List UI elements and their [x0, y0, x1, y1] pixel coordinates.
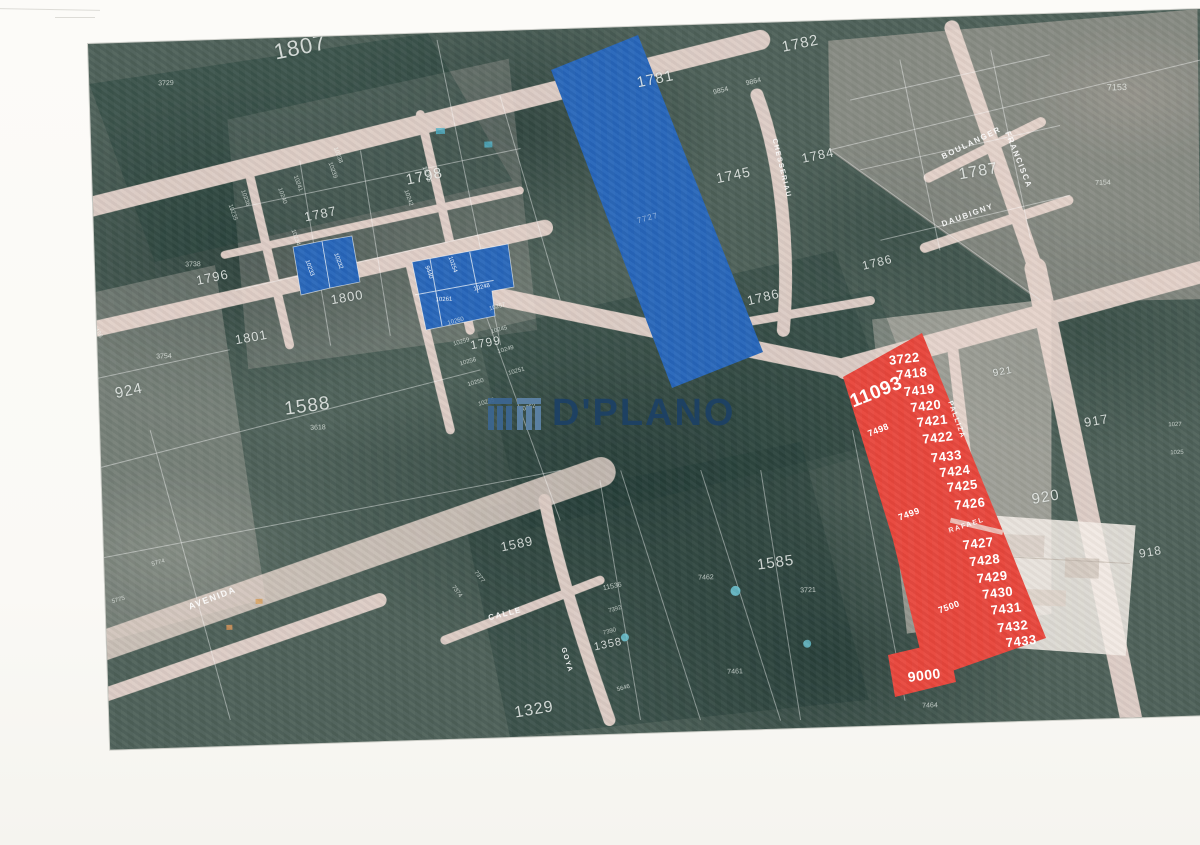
parcel-label: 7462: [698, 574, 714, 581]
red-lot-number: 7419: [903, 382, 935, 399]
red-lot-number: 9000: [907, 666, 942, 684]
parcel-label: 7153: [1107, 83, 1127, 93]
area-label: 918: [1138, 544, 1163, 560]
red-lot-number: 7429: [976, 569, 1008, 586]
scanned-aerial-map: 1807179817871796180118001799158892417811…: [88, 9, 1200, 750]
logo-glyph-light: [517, 398, 541, 430]
red-lot-number: 7425: [946, 478, 978, 495]
brand-wordmark: D'PLANO: [552, 392, 735, 435]
parcel-label: 3721: [800, 587, 816, 594]
parcel-label: 7461: [727, 668, 743, 675]
parcel-label: 7154: [1095, 179, 1111, 186]
red-lot-number: 3722: [888, 350, 920, 367]
parcel-label: 3754: [156, 353, 172, 360]
scan-artifact-line: [0, 8, 100, 11]
scanned-map-page: 1807179817871796180118001799158892417811…: [0, 0, 1200, 845]
red-lot-number: 7426: [954, 495, 986, 512]
red-lot-number: 7418: [896, 365, 928, 382]
blue-lot-number: 10261: [436, 297, 453, 304]
red-lot-number: 7433: [930, 448, 962, 465]
red-lot-number: 7430: [982, 585, 1014, 602]
red-lot-number: 7431: [990, 600, 1022, 617]
red-lot-number: 7422: [922, 429, 954, 446]
parcel-label: 7464: [922, 702, 938, 709]
parcel-label: 3729: [158, 80, 174, 87]
parcel-label: 1025: [1170, 450, 1184, 456]
parcel-label: 3738: [185, 261, 201, 268]
red-lot-number: 7432: [997, 618, 1029, 635]
dplano-watermark: D'PLANO: [488, 392, 735, 435]
logo-glyph-dark: [488, 398, 512, 430]
red-lot-number: 7427: [962, 535, 994, 552]
red-lot-number: 7433: [1005, 633, 1037, 650]
red-lot-number: 7428: [969, 552, 1001, 569]
area-label: 917: [1083, 412, 1110, 429]
scan-artifact-line: [55, 17, 95, 18]
red-lot-number: 7421: [916, 413, 948, 430]
area-label: 920: [1031, 487, 1061, 507]
parcel-label: 1027: [1168, 422, 1182, 428]
dplano-logo-icon: [488, 394, 544, 434]
parcel-label: 3618: [310, 424, 326, 431]
